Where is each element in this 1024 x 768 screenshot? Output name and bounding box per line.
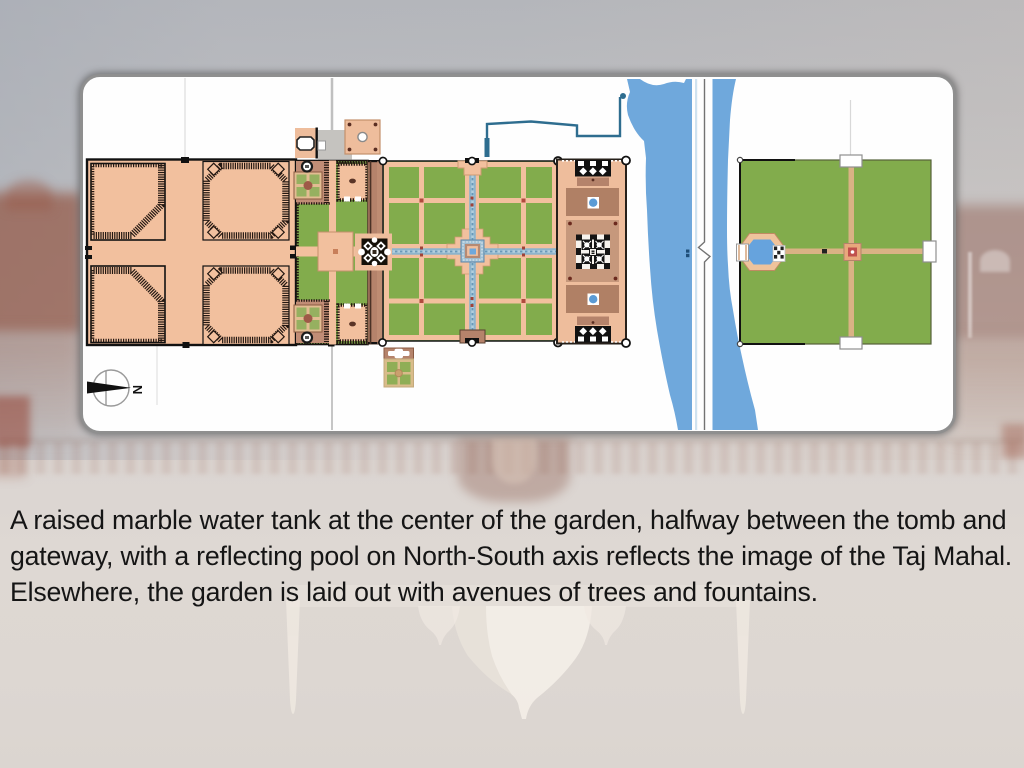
svg-text:N: N xyxy=(130,385,145,394)
